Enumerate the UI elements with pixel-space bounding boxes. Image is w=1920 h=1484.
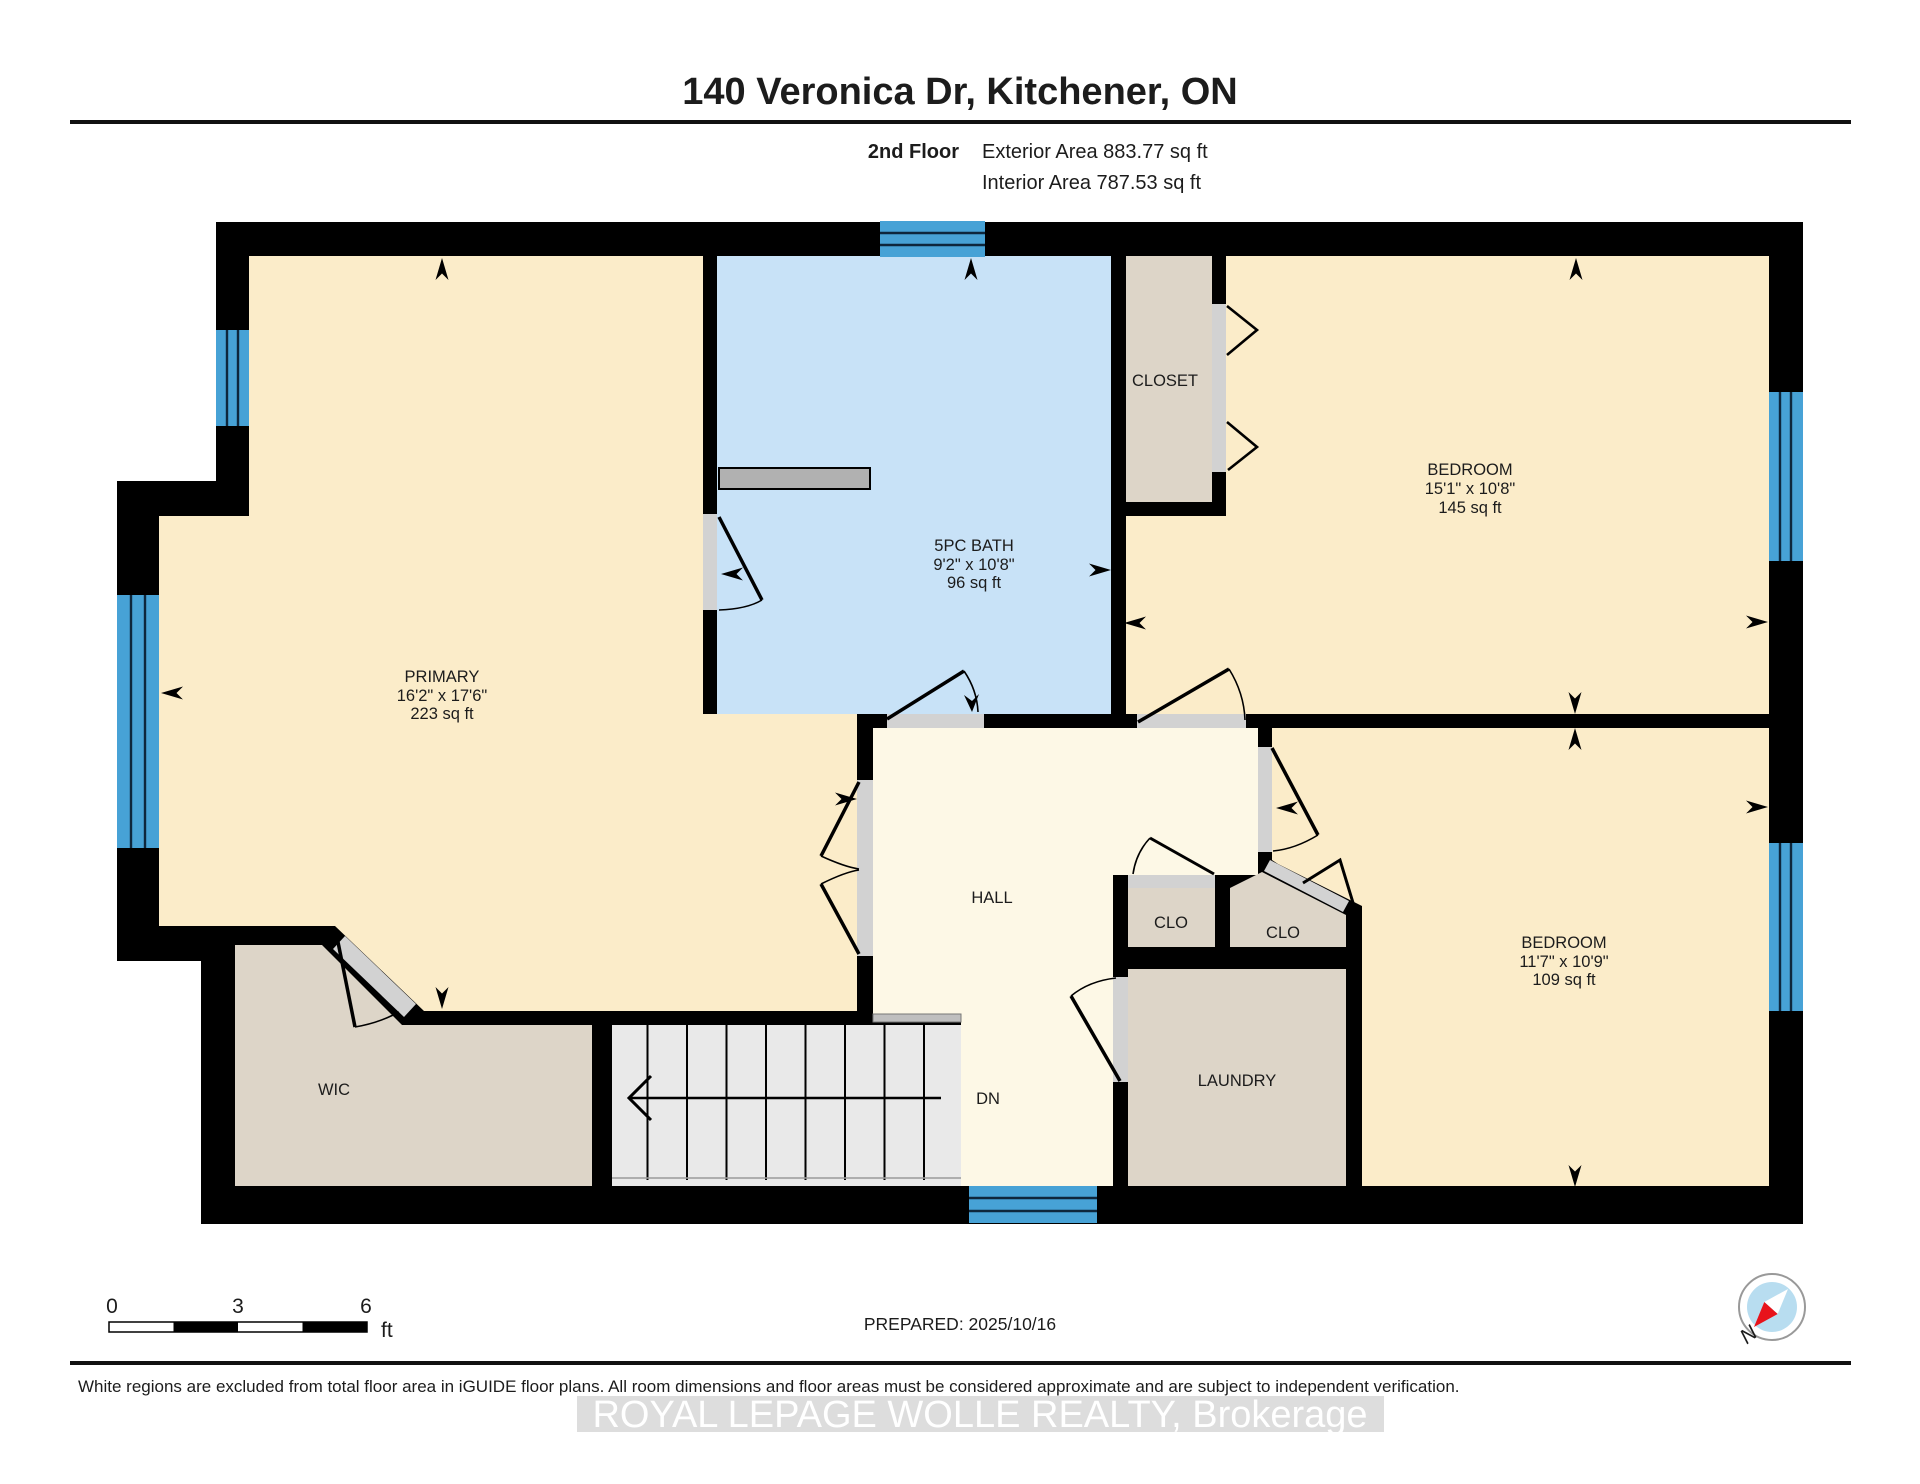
svg-text:96 sq ft: 96 sq ft bbox=[947, 574, 1002, 592]
svg-text:140 Veronica Dr, Kitchener, ON: 140 Veronica Dr, Kitchener, ON bbox=[682, 71, 1237, 113]
svg-text:2nd Floor: 2nd Floor bbox=[868, 141, 959, 163]
svg-text:16'2" x 17'6": 16'2" x 17'6" bbox=[397, 687, 488, 705]
svg-text:ROYAL LEPAGE WOLLE REALTY, Bro: ROYAL LEPAGE WOLLE REALTY, Brokerage bbox=[592, 1394, 1367, 1436]
svg-text:5PC BATH: 5PC BATH bbox=[934, 537, 1013, 555]
svg-text:109 sq ft: 109 sq ft bbox=[1532, 971, 1596, 989]
svg-text:BEDROOM: BEDROOM bbox=[1427, 461, 1512, 479]
svg-text:145 sq ft: 145 sq ft bbox=[1438, 499, 1502, 517]
svg-text:223 sq ft: 223 sq ft bbox=[410, 705, 474, 723]
svg-text:Exterior Area 883.77 sq ft: Exterior Area 883.77 sq ft bbox=[982, 141, 1208, 163]
svg-text:CLOSET: CLOSET bbox=[1132, 372, 1198, 390]
svg-text:ft: ft bbox=[381, 1319, 393, 1342]
svg-text:HALL: HALL bbox=[971, 889, 1012, 907]
svg-text:BEDROOM: BEDROOM bbox=[1521, 934, 1606, 952]
svg-text:Interior Area 787.53 sq ft: Interior Area 787.53 sq ft bbox=[982, 172, 1201, 194]
svg-text:CLO: CLO bbox=[1154, 914, 1188, 932]
svg-text:9'2" x 10'8": 9'2" x 10'8" bbox=[933, 556, 1014, 574]
svg-text:WIC: WIC bbox=[318, 1081, 350, 1099]
svg-text:PREPARED: 2025/10/16: PREPARED: 2025/10/16 bbox=[864, 1314, 1056, 1334]
svg-text:LAUNDRY: LAUNDRY bbox=[1198, 1072, 1277, 1090]
svg-text:6: 6 bbox=[360, 1295, 372, 1318]
svg-text:PRIMARY: PRIMARY bbox=[405, 668, 480, 686]
svg-text:15'1" x 10'8": 15'1" x 10'8" bbox=[1425, 480, 1516, 498]
svg-text:CLO: CLO bbox=[1266, 924, 1300, 942]
svg-text:3: 3 bbox=[232, 1295, 244, 1318]
svg-text:11'7" x 10'9": 11'7" x 10'9" bbox=[1519, 953, 1608, 971]
svg-text:0: 0 bbox=[106, 1295, 118, 1318]
svg-text:DN: DN bbox=[976, 1090, 1000, 1108]
